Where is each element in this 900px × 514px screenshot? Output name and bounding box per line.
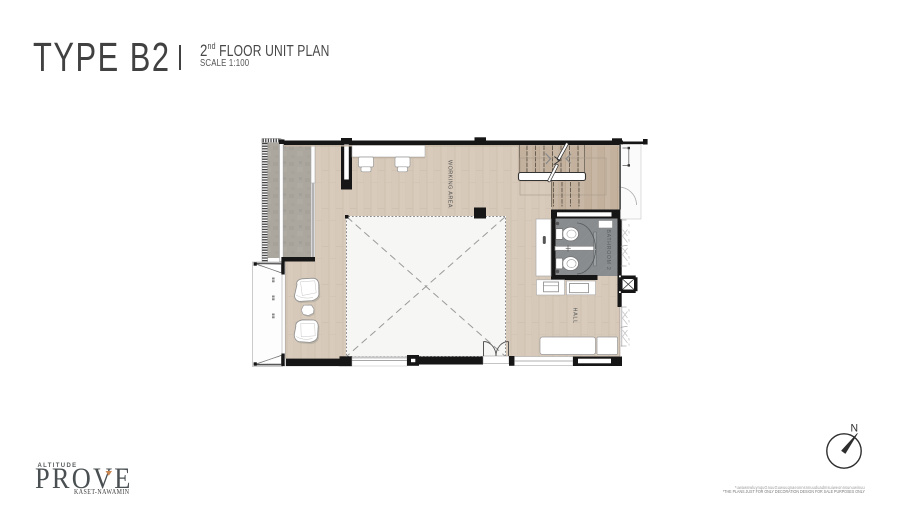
- svg-text:N: N: [851, 422, 859, 434]
- svg-text:WORKING AREA: WORKING AREA: [447, 160, 453, 208]
- svg-text:BATHROOM 2: BATHROOM 2: [605, 230, 611, 271]
- svg-text:HALL: HALL: [572, 308, 578, 324]
